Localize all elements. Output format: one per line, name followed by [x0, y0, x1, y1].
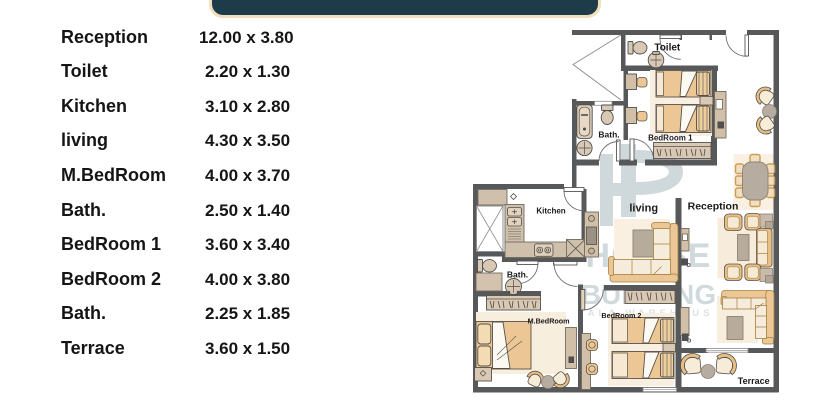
- svg-text:Bath.: Bath.: [507, 270, 528, 280]
- svg-text:Kitchen: Kitchen: [536, 207, 565, 216]
- svg-text:Toilet: Toilet: [654, 43, 681, 54]
- svg-text:BedRoom 1: BedRoom 1: [648, 134, 693, 143]
- svg-text:M.BedRoom: M.BedRoom: [528, 317, 570, 326]
- svg-text:living: living: [629, 203, 658, 215]
- svg-text:Reception: Reception: [688, 201, 739, 213]
- svg-text:Terrace: Terrace: [738, 376, 770, 386]
- svg-text:Bath.: Bath.: [598, 130, 619, 140]
- svg-text:BedRoom 2: BedRoom 2: [601, 311, 641, 320]
